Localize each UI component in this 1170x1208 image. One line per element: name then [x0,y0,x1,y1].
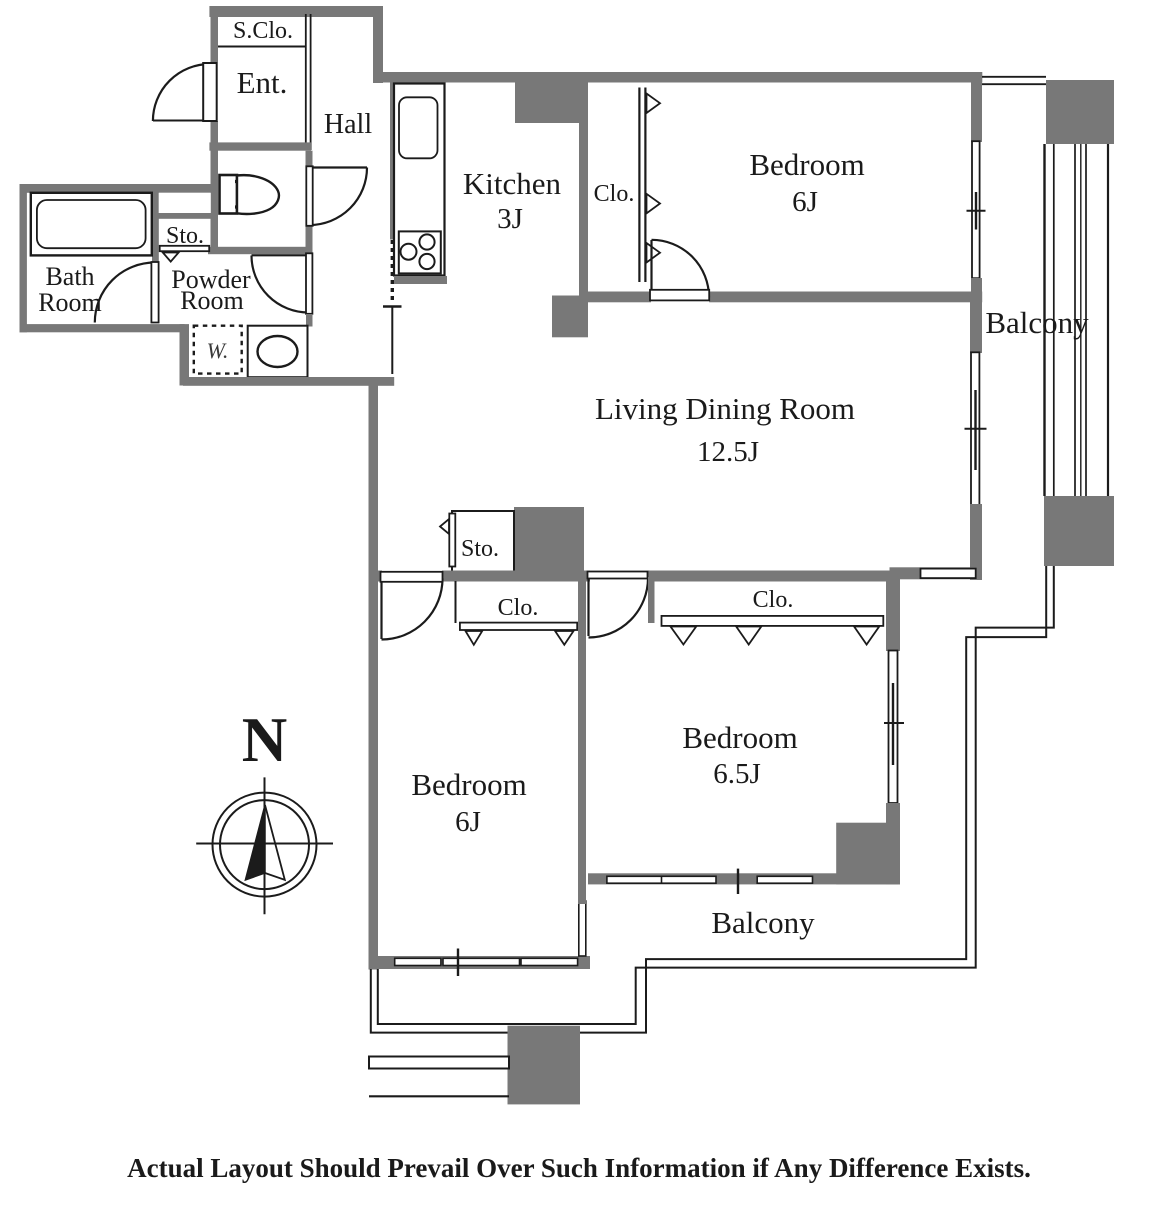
svg-text:Balcony: Balcony [985,305,1089,340]
svg-text:Sto.: Sto. [461,536,499,562]
svg-text:S.Clo.: S.Clo. [233,18,293,44]
svg-text:Sto.: Sto. [166,223,204,249]
svg-text:6J: 6J [455,806,481,838]
svg-text:Balcony: Balcony [711,905,815,940]
svg-text:W.: W. [207,338,229,363]
svg-text:Bedroom: Bedroom [411,767,526,802]
svg-text:12.5J: 12.5J [697,436,759,468]
svg-text:N: N [242,705,288,775]
svg-text:Room: Room [38,288,102,317]
svg-text:3J: 3J [497,203,523,235]
svg-text:Room: Room [180,286,244,315]
svg-text:Hall: Hall [324,109,372,140]
svg-text:6.5J: 6.5J [713,758,761,790]
svg-text:6J: 6J [792,186,818,218]
svg-text:Clo.: Clo. [594,181,635,207]
svg-text:Bath: Bath [45,262,94,291]
svg-text:Ent.: Ent. [237,65,288,100]
svg-text:Living Dining Room: Living Dining Room [595,391,855,426]
svg-text:Bedroom: Bedroom [682,720,797,755]
svg-text:Bedroom: Bedroom [749,147,864,182]
svg-text:Kitchen: Kitchen [463,166,562,201]
svg-text:Actual Layout Should Prevail O: Actual Layout Should Prevail Over Such I… [127,1153,1031,1183]
svg-text:Clo.: Clo. [498,595,539,621]
svg-text:Clo.: Clo. [753,587,794,613]
